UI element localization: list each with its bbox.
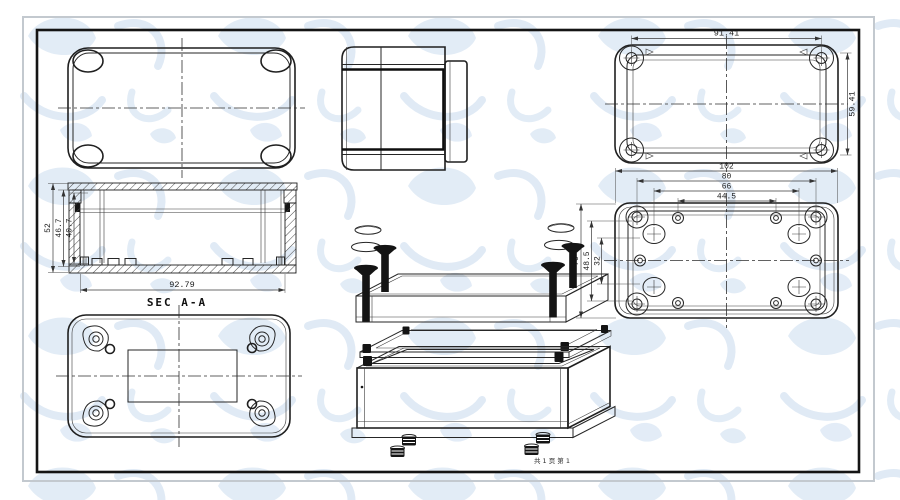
drawing-sheet: 91.41 59.41 (0, 0, 900, 500)
dim-66: 66 (722, 183, 732, 192)
dim-48-5: 48.5 (583, 251, 592, 270)
dim-32: 32 (594, 256, 603, 266)
dim-102: 102 (719, 163, 734, 172)
dim-46-7: 46.7 (55, 218, 64, 237)
section-label: SEC A-A (147, 296, 207, 309)
dim-80: 80 (722, 173, 732, 182)
dim-lid-height: 59.41 (848, 91, 858, 117)
dim-52: 52 (44, 223, 53, 233)
dim-44-5: 44.5 (717, 193, 736, 202)
dim-92-79: 92.79 (169, 280, 195, 290)
cad-drawing: 91.41 59.41 (0, 0, 900, 500)
dim-lid-width: 91.41 (714, 29, 740, 39)
dim-40-7: 40.7 (65, 218, 74, 237)
page-note: 共 1 页 第 1 (534, 456, 570, 465)
